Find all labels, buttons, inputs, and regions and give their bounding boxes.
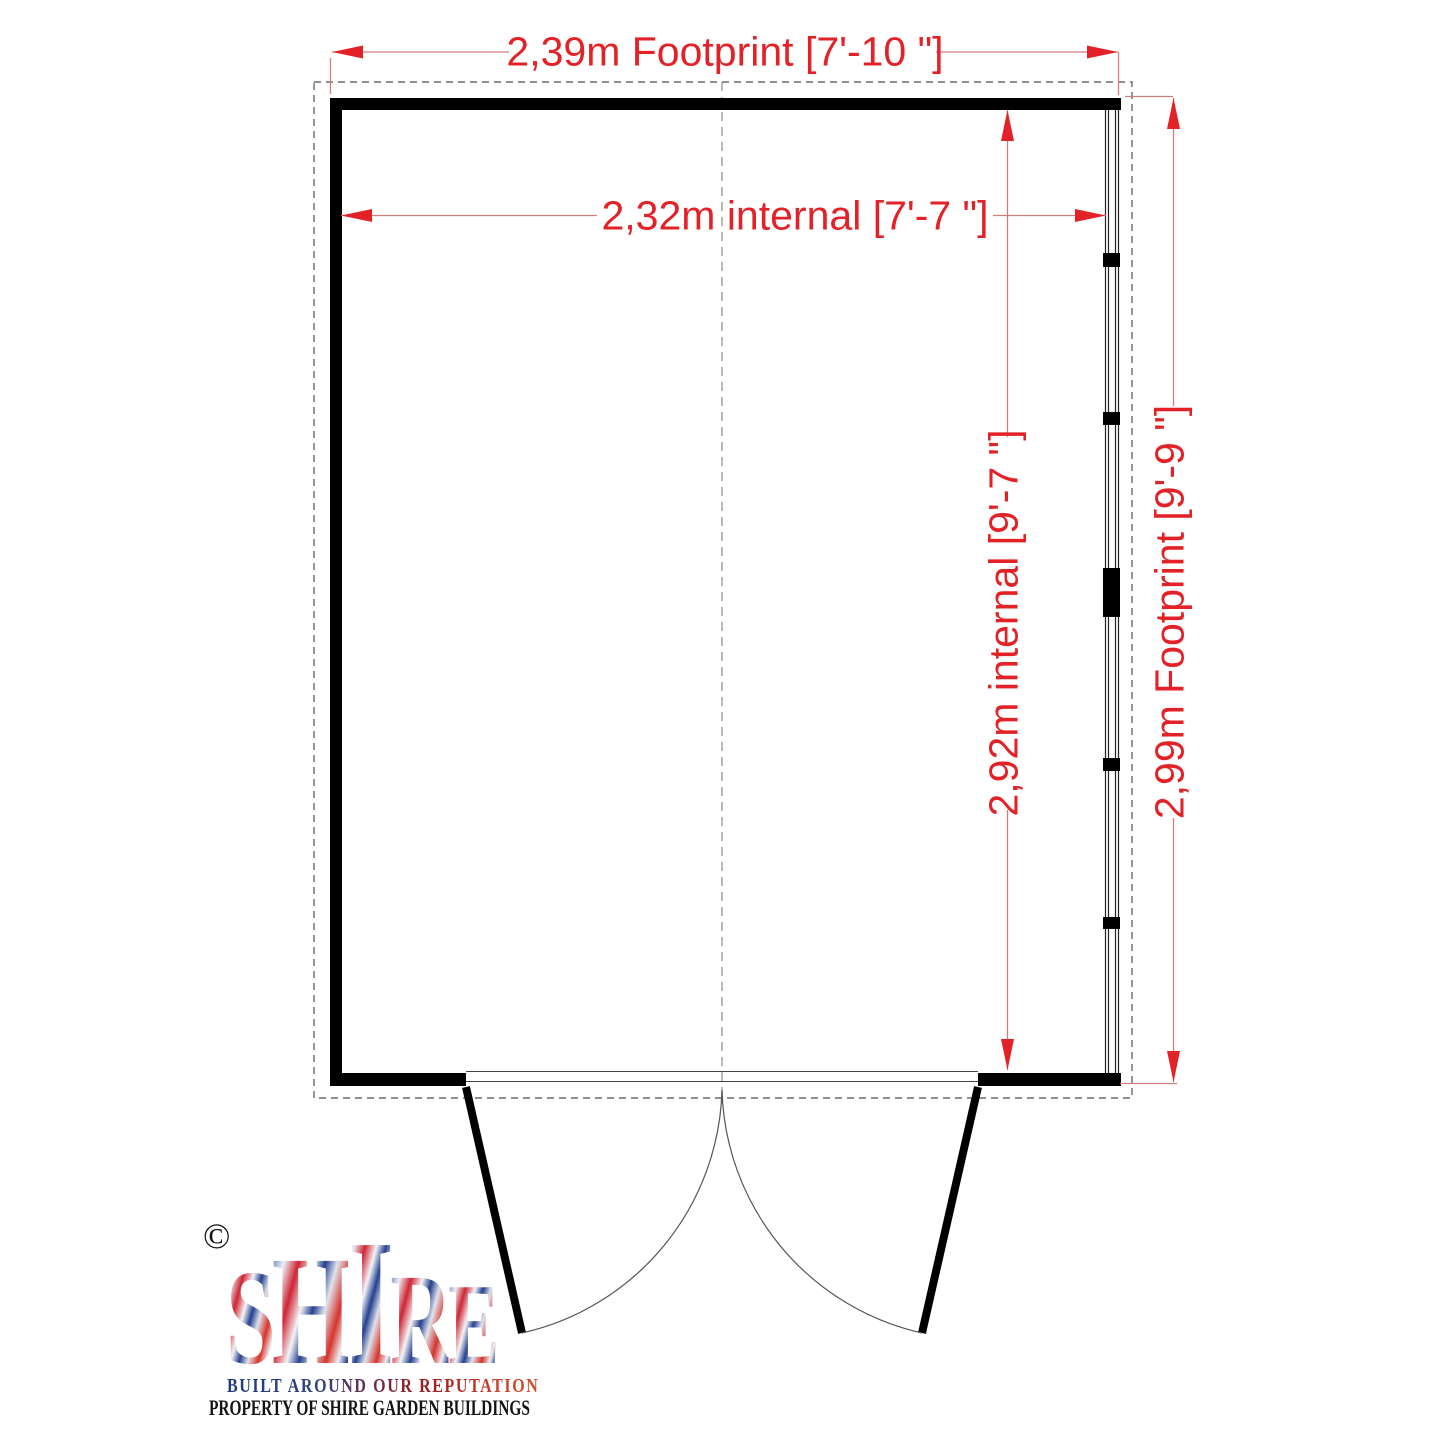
dimension-label-footprint-depth: 2,99m Footprint [9'-9 "] <box>1150 405 1191 819</box>
double-doors <box>466 1087 978 1333</box>
wall-top <box>330 98 1121 110</box>
dimension-label-internal-width: 2,32m internal [7'-7 "] <box>601 196 988 237</box>
wall-bottom-left <box>330 1073 466 1086</box>
logo-letter-r: R <box>390 1248 448 1392</box>
logo-letter-s: S <box>226 1243 272 1393</box>
logo-letter-h: H <box>272 1224 348 1397</box>
wall-left <box>330 98 342 1086</box>
door-leaf-right <box>922 1087 978 1333</box>
logo-letter-e: E <box>448 1261 495 1389</box>
shire-logo: SHIRE <box>226 1213 495 1393</box>
shed-floor-plan-page: 2,39m Footprint [7'-10 "] 2,32m internal… <box>0 0 1445 1445</box>
wall-bottom-right <box>978 1073 1121 1086</box>
logo-letter-i: I <box>348 1203 390 1402</box>
dimension-label-footprint-width: 2,39m Footprint [7'-10 "] <box>506 32 943 73</box>
logo-property-line: PROPERTY OF SHIRE GARDEN BUILDINGS <box>209 1397 530 1419</box>
dimension-label-internal-depth: 2,92m internal [9'-7 "] <box>984 429 1025 816</box>
door-swing-arcs <box>522 1090 922 1333</box>
logo-tagline: BUILT AROUND OUR REPUTATION <box>227 1376 539 1396</box>
